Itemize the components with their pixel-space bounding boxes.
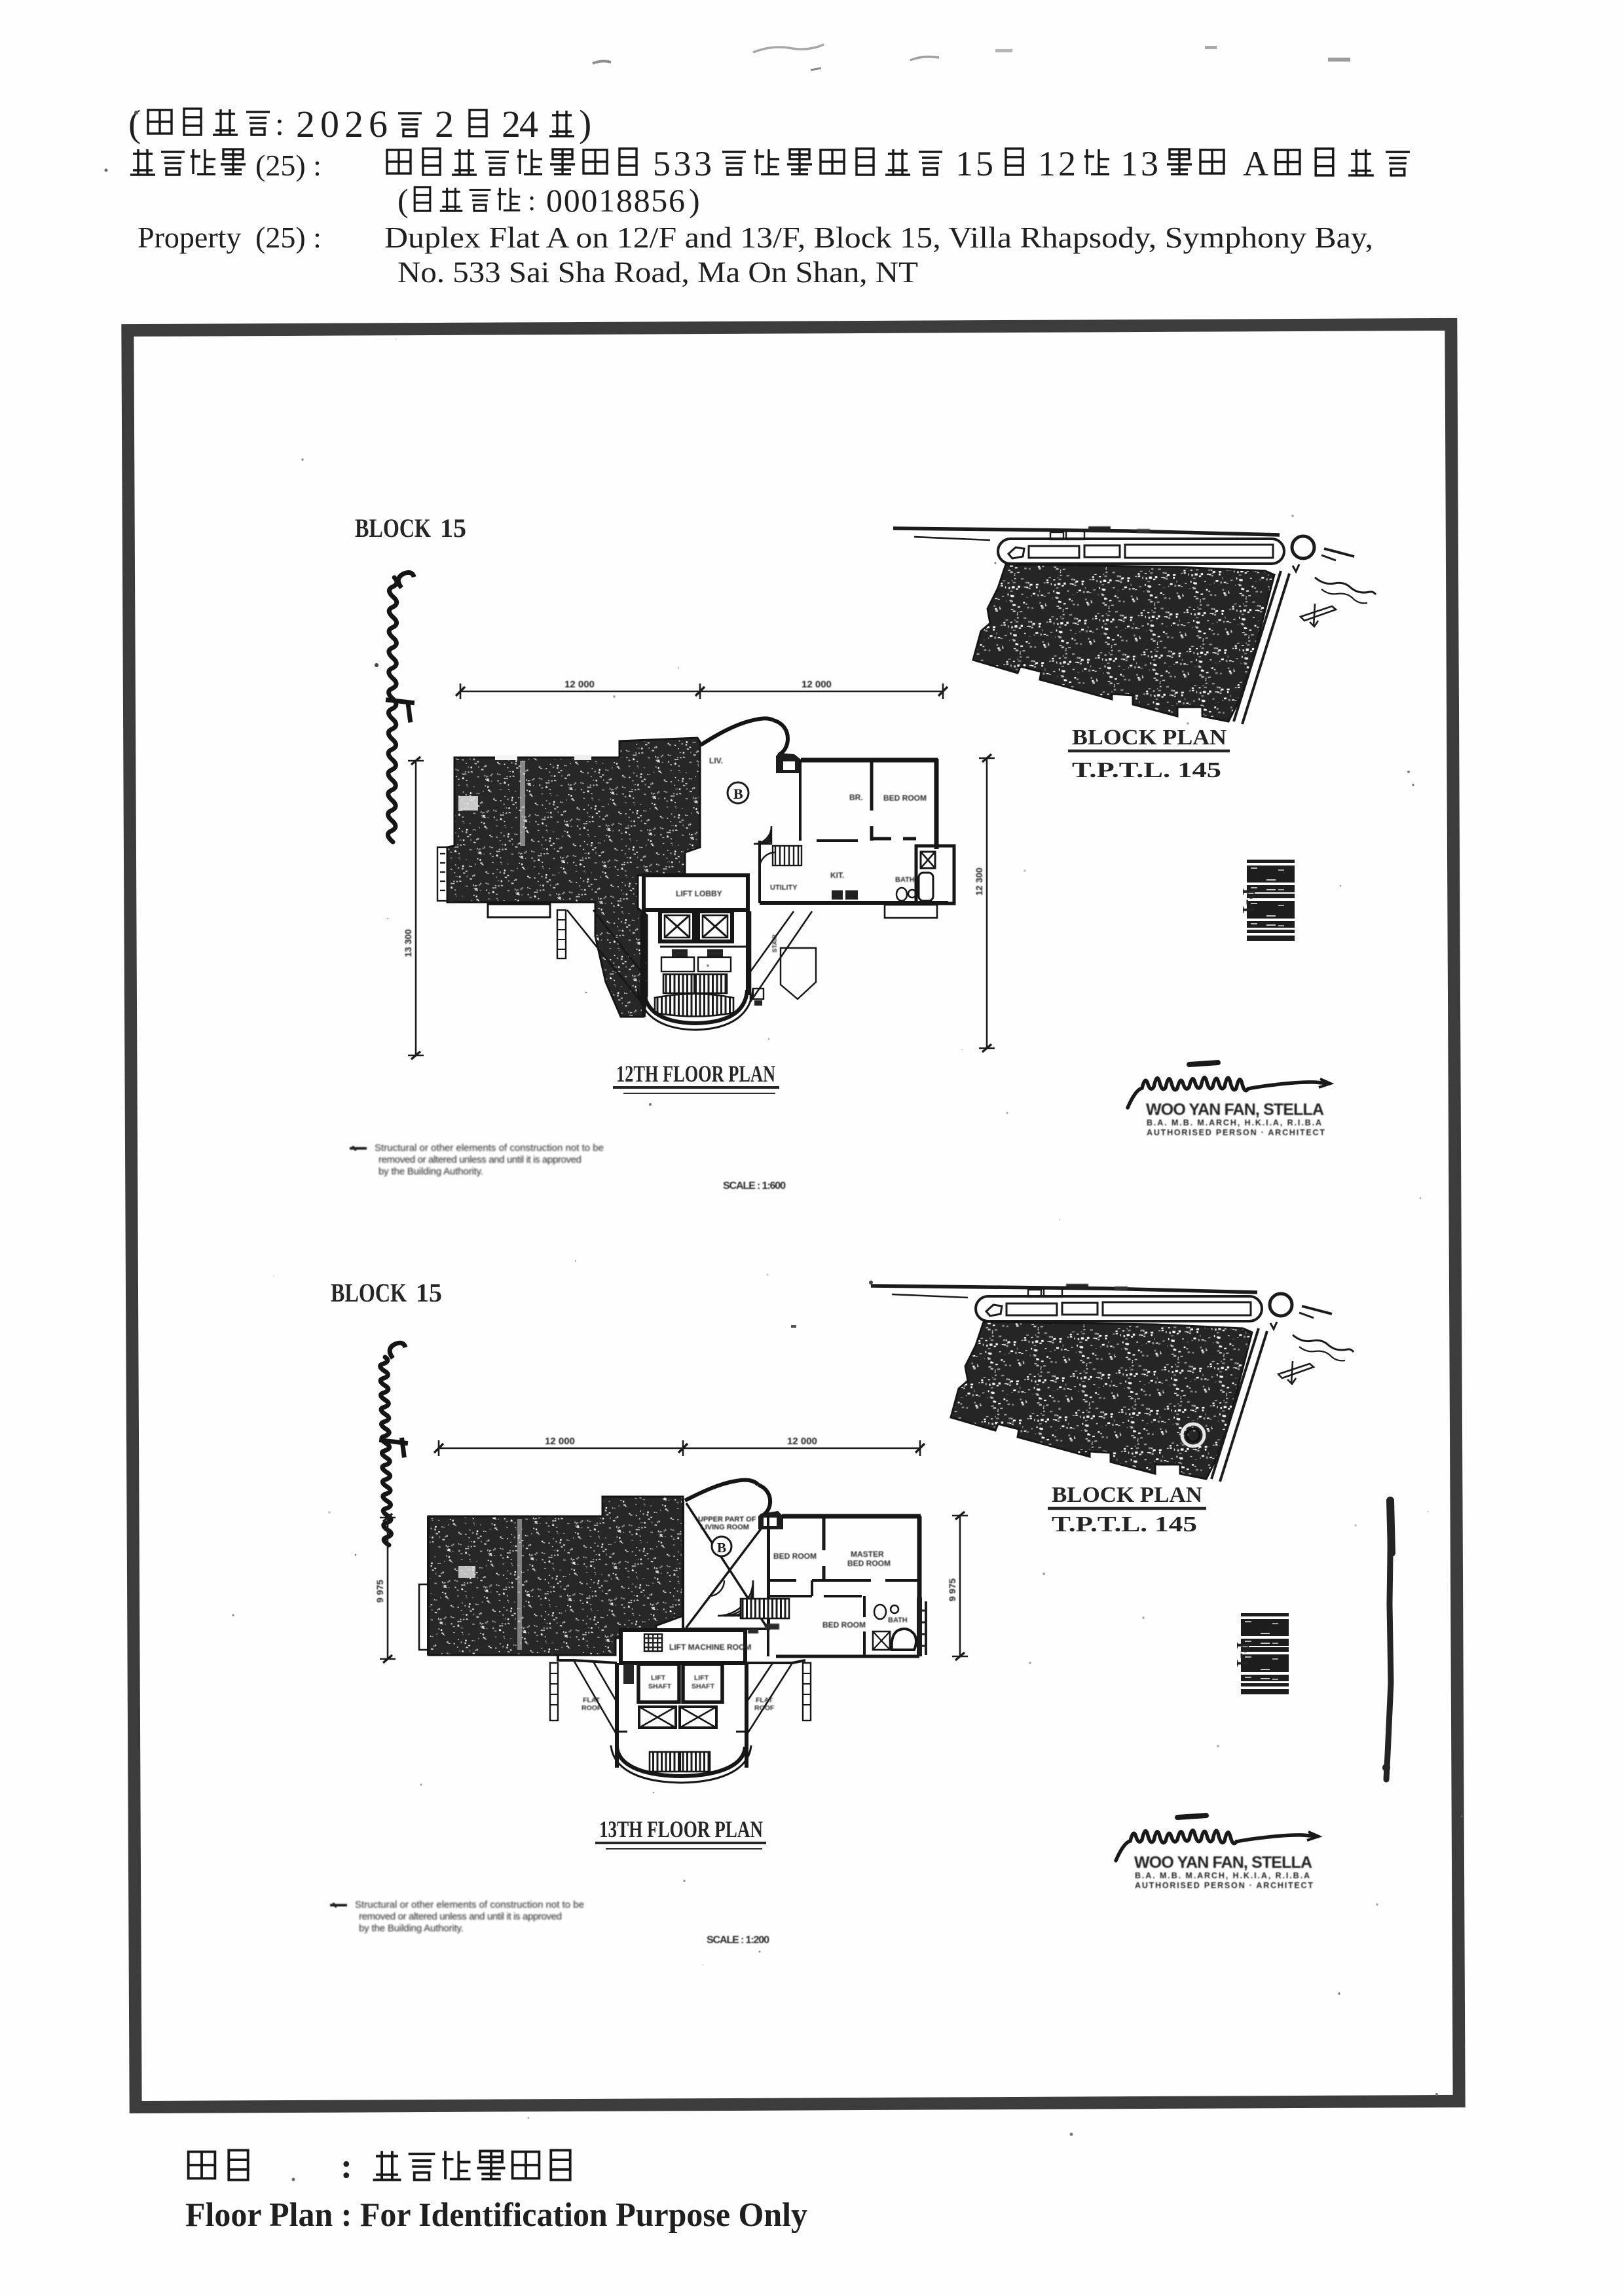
svg-text:ROOF: ROOF [754, 1704, 775, 1712]
svg-text:): ) [579, 102, 591, 145]
svg-text:P-1: P-1 [1233, 1642, 1253, 1667]
svg-text:LIVING ROOM: LIVING ROOM [701, 1523, 749, 1531]
svg-text:12 000: 12 000 [787, 1436, 817, 1447]
svg-text:BED ROOM: BED ROOM [847, 1559, 891, 1568]
svg-text:BLOCK PLAN: BLOCK PLAN [1052, 1483, 1202, 1507]
svg-text:UTILITY: UTILITY [770, 884, 798, 892]
svg-text:SCALE : 1:600: SCALE : 1:600 [723, 1180, 786, 1192]
svg-text:15: 15 [440, 513, 466, 543]
svg-text:BATH: BATH [895, 876, 915, 884]
svg-text:B.A. M.B. M.ARCH, H.K.I.A,: B.A. M.B. M.ARCH, H.K.I.A, R.I.B.A [1135, 1871, 1310, 1880]
svg-text::: : [341, 2146, 352, 2185]
svg-text:FLAT: FLAT [756, 1696, 773, 1704]
svg-text:15: 15 [416, 1278, 442, 1307]
svg-text::: : [528, 185, 536, 217]
svg-text:removed or altered unless and: removed or altered unless and until it i… [378, 1154, 581, 1165]
svg-text:00018856: 00018856 [546, 182, 685, 219]
svg-text:13TH FLOOR PLAN: 13TH FLOOR PLAN [599, 1816, 763, 1842]
svg-text:533: 533 [653, 144, 712, 183]
svg-text:No. 533 Sai Sha Road, Ma On Sh: No. 533 Sai Sha Road, Ma On Shan, NT [397, 255, 918, 289]
svg-text:12TH FLOOR PLAN: 12TH FLOOR PLAN [616, 1061, 775, 1087]
svg-text:LIFT LOBBY: LIFT LOBBY [676, 889, 722, 898]
svg-text:12 000: 12 000 [564, 679, 595, 690]
svg-text:SHAFT: SHAFT [692, 1683, 715, 1690]
svg-text:BLOCK: BLOCK [331, 1278, 407, 1307]
svg-text:MASTER: MASTER [851, 1550, 884, 1559]
svg-text:BLOCK: BLOCK [355, 513, 431, 543]
svg-text:by the Building Authority.: by the Building Authority. [378, 1166, 483, 1177]
svg-text:P-1: P-1 [1239, 888, 1259, 914]
svg-text:13 300: 13 300 [403, 929, 413, 957]
svg-text:FLAT: FLAT [583, 1696, 600, 1704]
svg-text:(: ( [128, 102, 141, 145]
svg-text:9 975: 9 975 [947, 1578, 957, 1601]
svg-text:SHAFT: SHAFT [648, 1683, 672, 1690]
svg-text:2: 2 [435, 103, 454, 145]
svg-text:LIFT: LIFT [651, 1674, 666, 1682]
svg-text:Property: Property [138, 221, 241, 254]
svg-text:BED ROOM: BED ROOM [822, 1620, 866, 1630]
svg-text:24: 24 [502, 103, 538, 145]
svg-text:A: A [1243, 144, 1268, 183]
svg-text:(25) :: (25) : [255, 149, 322, 182]
svg-text:by the Building Authority.: by the Building Authority. [359, 1923, 464, 1934]
svg-text:SCALE : 1:200: SCALE : 1:200 [707, 1935, 769, 1946]
svg-text:T.P.T.L. 145: T.P.T.L. 145 [1052, 1512, 1197, 1537]
svg-text:12 300: 12 300 [974, 867, 984, 896]
svg-text:LIFT MACHINE ROOM: LIFT MACHINE ROOM [669, 1643, 751, 1652]
svg-text:WOO YAN FAN, STELLA: WOO YAN FAN, STELLA [1146, 1101, 1324, 1119]
svg-text:(25) :: (25) : [255, 221, 322, 254]
svg-text:): ) [689, 182, 700, 219]
svg-text:B: B [733, 786, 743, 802]
svg-text:removed or altered unless and: removed or altered unless and until it i… [359, 1911, 562, 1922]
svg-text:WOO YAN FAN, STELLA: WOO YAN FAN, STELLA [1134, 1853, 1312, 1872]
svg-text:BLOCK PLAN: BLOCK PLAN [1072, 725, 1227, 750]
svg-text:Duplex Flat A on 12/F and 13/F: Duplex Flat A on 12/F and 13/F, Block 15… [384, 221, 1373, 254]
svg-text:UPPER PART OF: UPPER PART OF [698, 1516, 756, 1523]
svg-text:Structural or other elements o: Structural or other elements of construc… [355, 1899, 584, 1910]
svg-text:(: ( [397, 182, 409, 219]
svg-text:Structural or other elements o: Structural or other elements of construc… [375, 1142, 604, 1154]
svg-text:B.A. M.B. M.ARCH, H.K.I.A,: B.A. M.B. M.ARCH, H.K.I.A, R.I.B.A [1147, 1118, 1321, 1127]
svg-text:Floor Plan : For Identificatio: Floor Plan : For Identification Purpose … [185, 2196, 807, 2234]
svg-text:LIV.: LIV. [709, 756, 723, 765]
svg-text:12 000: 12 000 [802, 679, 832, 690]
svg-text:BR.: BR. [849, 793, 863, 802]
svg-text:LIFT: LIFT [694, 1674, 709, 1682]
svg-text:BATH: BATH [888, 1616, 908, 1624]
svg-text:BED ROOM: BED ROOM [773, 1552, 817, 1561]
svg-text:9 975: 9 975 [375, 1580, 385, 1603]
svg-text:T.P.T.L. 145: T.P.T.L. 145 [1072, 758, 1221, 782]
svg-text:ROOF: ROOF [581, 1704, 602, 1712]
svg-text:BED ROOM: BED ROOM [883, 793, 927, 803]
svg-text:KIT.: KIT. [830, 871, 844, 880]
svg-text:12 000: 12 000 [545, 1436, 575, 1447]
svg-text::: : [275, 105, 284, 142]
svg-text:B: B [717, 1540, 726, 1556]
